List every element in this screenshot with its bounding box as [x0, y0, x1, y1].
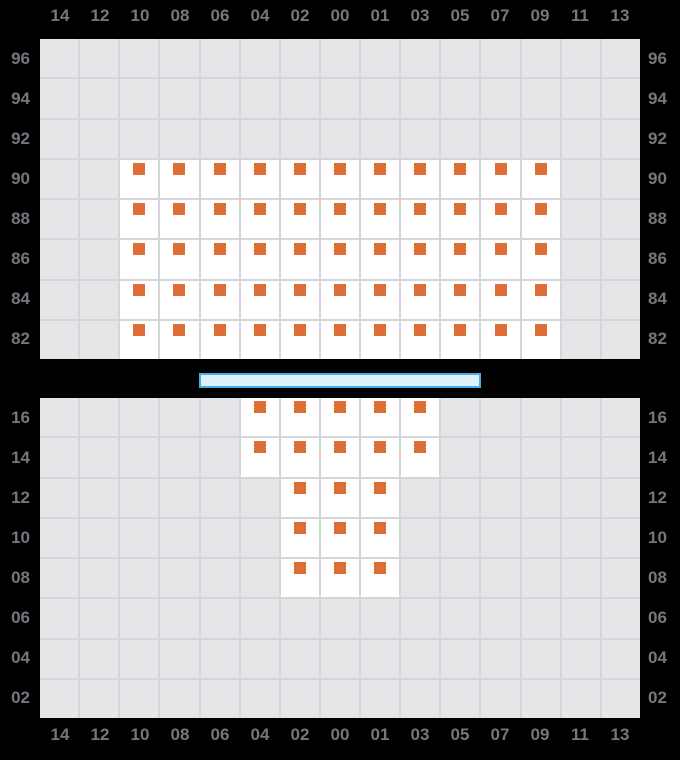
cell-88-06[interactable]: [201, 200, 239, 238]
cell-08-05: [441, 559, 479, 597]
cell-96-06: [201, 39, 239, 77]
cell-82-02[interactable]: [281, 321, 319, 359]
cell-12-01[interactable]: [361, 479, 399, 517]
occupied-marker-icon: [374, 203, 386, 215]
cell-86-05[interactable]: [441, 240, 479, 278]
cell-90-01[interactable]: [361, 160, 399, 198]
row-label-90: 90: [648, 159, 680, 199]
cell-92-05: [441, 120, 479, 158]
cell-82-09[interactable]: [522, 321, 560, 359]
row-label-06: 06: [0, 598, 30, 638]
cell-16-09: [522, 398, 560, 436]
occupied-marker-icon: [334, 284, 346, 296]
cell-96-10: [120, 39, 158, 77]
cell-90-03[interactable]: [401, 160, 439, 198]
cell-16-04[interactable]: [241, 398, 279, 436]
cell-04-07: [481, 640, 519, 678]
cell-02-02: [281, 680, 319, 718]
occupied-marker-icon: [495, 203, 507, 215]
cell-02-11: [562, 680, 600, 718]
cell-86-01[interactable]: [361, 240, 399, 278]
cell-12-09: [522, 479, 560, 517]
cell-04-03: [401, 640, 439, 678]
cell-96-12: [80, 39, 118, 77]
cell-94-14: [40, 79, 78, 117]
cell-84-11: [562, 281, 600, 319]
occupied-marker-icon: [214, 243, 226, 255]
cell-88-01[interactable]: [361, 200, 399, 238]
occupied-marker-icon: [374, 324, 386, 336]
occupied-marker-icon: [535, 284, 547, 296]
occupied-marker-icon: [414, 324, 426, 336]
cell-84-03[interactable]: [401, 281, 439, 319]
cell-84-06[interactable]: [201, 281, 239, 319]
cell-84-08[interactable]: [160, 281, 198, 319]
cell-02-12: [80, 680, 118, 718]
cell-08-11: [562, 559, 600, 597]
column-label-02: 02: [280, 0, 320, 32]
occupied-marker-icon: [334, 441, 346, 453]
cell-96-03: [401, 39, 439, 77]
row-label-10: 10: [648, 518, 680, 558]
cell-90-09[interactable]: [522, 160, 560, 198]
occupied-marker-icon: [334, 203, 346, 215]
cell-16-00[interactable]: [321, 398, 359, 436]
occupied-marker-icon: [374, 284, 386, 296]
cell-14-03[interactable]: [401, 438, 439, 476]
cell-12-13: [602, 479, 640, 517]
cell-84-02[interactable]: [281, 281, 319, 319]
cell-04-08: [160, 640, 198, 678]
row-labels-lower-left: 1614121008060402: [0, 398, 34, 718]
cell-86-09[interactable]: [522, 240, 560, 278]
cell-08-00[interactable]: [321, 559, 359, 597]
cell-84-07[interactable]: [481, 281, 519, 319]
row-label-04: 04: [0, 638, 30, 678]
cell-12-07: [481, 479, 519, 517]
cell-84-05[interactable]: [441, 281, 479, 319]
cell-08-10: [120, 559, 158, 597]
column-label-03: 03: [400, 0, 440, 32]
cell-12-12: [80, 479, 118, 517]
cell-88-08[interactable]: [160, 200, 198, 238]
divider-bar: [199, 373, 481, 388]
cell-12-04: [241, 479, 279, 517]
cell-16-03[interactable]: [401, 398, 439, 436]
cell-82-03[interactable]: [401, 321, 439, 359]
occupied-marker-icon: [173, 284, 185, 296]
cell-08-01[interactable]: [361, 559, 399, 597]
occupied-marker-icon: [214, 163, 226, 175]
cell-82-13: [602, 321, 640, 359]
row-label-14: 14: [648, 438, 680, 478]
row-label-14: 14: [0, 438, 30, 478]
row-label-12: 12: [648, 478, 680, 518]
cell-86-13: [602, 240, 640, 278]
row-label-04: 04: [648, 638, 680, 678]
occupied-marker-icon: [254, 401, 266, 413]
cell-08-09: [522, 559, 560, 597]
occupied-marker-icon: [374, 522, 386, 534]
cell-88-13: [602, 200, 640, 238]
cell-84-13: [602, 281, 640, 319]
cell-88-03[interactable]: [401, 200, 439, 238]
row-label-94: 94: [648, 79, 680, 119]
cell-90-06[interactable]: [201, 160, 239, 198]
cell-88-04[interactable]: [241, 200, 279, 238]
cell-92-10: [120, 120, 158, 158]
column-label-04: 04: [240, 719, 280, 751]
cell-02-00: [321, 680, 359, 718]
cell-04-13: [602, 640, 640, 678]
occupied-marker-icon: [495, 284, 507, 296]
column-label-02: 02: [280, 719, 320, 751]
cell-84-10[interactable]: [120, 281, 158, 319]
occupied-marker-icon: [294, 482, 306, 494]
cell-14-02[interactable]: [281, 438, 319, 476]
cell-82-07[interactable]: [481, 321, 519, 359]
cell-94-09: [522, 79, 560, 117]
cell-02-13: [602, 680, 640, 718]
cell-84-04[interactable]: [241, 281, 279, 319]
cell-04-04: [241, 640, 279, 678]
cell-14-04[interactable]: [241, 438, 279, 476]
cell-86-14: [40, 240, 78, 278]
cell-94-12: [80, 79, 118, 117]
occupied-marker-icon: [294, 163, 306, 175]
occupied-marker-icon: [294, 203, 306, 215]
cell-06-03: [401, 599, 439, 637]
occupied-marker-icon: [294, 522, 306, 534]
cell-12-02[interactable]: [281, 479, 319, 517]
row-label-90: 90: [0, 159, 30, 199]
grid-map-page: 141210080604020001030507091113 969492908…: [0, 0, 680, 760]
cell-82-12: [80, 321, 118, 359]
cell-10-00[interactable]: [321, 519, 359, 557]
cell-14-06: [201, 438, 239, 476]
row-label-84: 84: [0, 279, 30, 319]
cell-10-08: [160, 519, 198, 557]
cell-82-08[interactable]: [160, 321, 198, 359]
cell-06-02: [281, 599, 319, 637]
column-label-12: 12: [80, 719, 120, 751]
row-label-02: 02: [0, 678, 30, 718]
cell-04-11: [562, 640, 600, 678]
row-labels-upper-right: 9694929088868482: [646, 39, 680, 359]
cell-82-04[interactable]: [241, 321, 279, 359]
cell-82-14: [40, 321, 78, 359]
cell-92-06: [201, 120, 239, 158]
cell-10-09: [522, 519, 560, 557]
cell-86-08[interactable]: [160, 240, 198, 278]
column-label-09: 09: [520, 0, 560, 32]
cell-08-14: [40, 559, 78, 597]
cell-16-12: [80, 398, 118, 436]
cell-14-05: [441, 438, 479, 476]
cell-04-14: [40, 640, 78, 678]
cell-10-12: [80, 519, 118, 557]
cell-86-02[interactable]: [281, 240, 319, 278]
row-label-84: 84: [648, 279, 680, 319]
cell-10-14: [40, 519, 78, 557]
cell-08-02[interactable]: [281, 559, 319, 597]
cell-14-00[interactable]: [321, 438, 359, 476]
cell-82-11: [562, 321, 600, 359]
cell-96-08: [160, 39, 198, 77]
cell-88-05[interactable]: [441, 200, 479, 238]
column-label-07: 07: [480, 719, 520, 751]
row-label-86: 86: [648, 239, 680, 279]
cell-88-12: [80, 200, 118, 238]
cell-14-01[interactable]: [361, 438, 399, 476]
occupied-marker-icon: [254, 284, 266, 296]
cell-06-01: [361, 599, 399, 637]
occupied-marker-icon: [294, 243, 306, 255]
cell-12-00[interactable]: [321, 479, 359, 517]
cell-06-11: [562, 599, 600, 637]
column-label-06: 06: [200, 0, 240, 32]
column-label-00: 00: [320, 0, 360, 32]
row-label-02: 02: [648, 678, 680, 718]
occupied-marker-icon: [254, 243, 266, 255]
row-label-08: 08: [648, 558, 680, 598]
cell-92-14: [40, 120, 78, 158]
column-labels-top: 141210080604020001030507091113: [40, 0, 640, 32]
occupied-marker-icon: [374, 401, 386, 413]
column-label-11: 11: [560, 719, 600, 751]
cell-06-00: [321, 599, 359, 637]
cell-08-03: [401, 559, 439, 597]
cell-02-01: [361, 680, 399, 718]
cell-82-00[interactable]: [321, 321, 359, 359]
occupied-marker-icon: [454, 243, 466, 255]
occupied-marker-icon: [334, 562, 346, 574]
cell-92-11: [562, 120, 600, 158]
occupied-marker-icon: [334, 324, 346, 336]
cell-88-02[interactable]: [281, 200, 319, 238]
column-label-04: 04: [240, 0, 280, 32]
cell-94-10: [120, 79, 158, 117]
cell-16-07: [481, 398, 519, 436]
cell-04-05: [441, 640, 479, 678]
cell-94-04: [241, 79, 279, 117]
cell-92-02: [281, 120, 319, 158]
occupied-marker-icon: [334, 243, 346, 255]
cell-06-13: [602, 599, 640, 637]
cell-14-11: [562, 438, 600, 476]
row-label-16: 16: [0, 398, 30, 438]
cell-06-09: [522, 599, 560, 637]
cell-94-03: [401, 79, 439, 117]
cell-10-04: [241, 519, 279, 557]
column-label-01: 01: [360, 0, 400, 32]
cell-90-08[interactable]: [160, 160, 198, 198]
column-label-14: 14: [40, 0, 80, 32]
column-label-07: 07: [480, 0, 520, 32]
occupied-marker-icon: [254, 324, 266, 336]
occupied-marker-icon: [173, 243, 185, 255]
cell-90-12: [80, 160, 118, 198]
cell-92-00: [321, 120, 359, 158]
row-label-16: 16: [648, 398, 680, 438]
row-labels-upper-left: 9694929088868482: [0, 39, 34, 359]
cell-16-05: [441, 398, 479, 436]
cell-84-14: [40, 281, 78, 319]
cell-84-00[interactable]: [321, 281, 359, 319]
cell-86-00[interactable]: [321, 240, 359, 278]
column-labels-bottom: 141210080604020001030507091113: [40, 719, 640, 751]
cell-90-11: [562, 160, 600, 198]
cell-90-10[interactable]: [120, 160, 158, 198]
occupied-marker-icon: [334, 163, 346, 175]
cell-92-08: [160, 120, 198, 158]
cell-08-13: [602, 559, 640, 597]
cell-04-09: [522, 640, 560, 678]
row-label-82: 82: [0, 319, 30, 359]
column-label-08: 08: [160, 0, 200, 32]
cell-16-13: [602, 398, 640, 436]
occupied-marker-icon: [214, 284, 226, 296]
cell-90-04[interactable]: [241, 160, 279, 198]
cell-96-07: [481, 39, 519, 77]
row-label-92: 92: [0, 119, 30, 159]
cell-82-10[interactable]: [120, 321, 158, 359]
cell-10-02[interactable]: [281, 519, 319, 557]
cell-16-10: [120, 398, 158, 436]
cell-88-00[interactable]: [321, 200, 359, 238]
cell-10-01[interactable]: [361, 519, 399, 557]
cell-06-04: [241, 599, 279, 637]
cell-90-07[interactable]: [481, 160, 519, 198]
cell-86-04[interactable]: [241, 240, 279, 278]
cell-16-02[interactable]: [281, 398, 319, 436]
cell-82-05[interactable]: [441, 321, 479, 359]
cell-04-02: [281, 640, 319, 678]
cell-94-07: [481, 79, 519, 117]
cell-90-00[interactable]: [321, 160, 359, 198]
column-label-01: 01: [360, 719, 400, 751]
cell-88-11: [562, 200, 600, 238]
cell-92-12: [80, 120, 118, 158]
cell-94-05: [441, 79, 479, 117]
column-label-14: 14: [40, 719, 80, 751]
occupied-marker-icon: [254, 203, 266, 215]
row-label-88: 88: [0, 199, 30, 239]
cell-96-14: [40, 39, 78, 77]
cell-86-10[interactable]: [120, 240, 158, 278]
occupied-marker-icon: [334, 401, 346, 413]
occupied-marker-icon: [414, 163, 426, 175]
cell-90-05[interactable]: [441, 160, 479, 198]
cell-92-01: [361, 120, 399, 158]
cell-08-04: [241, 559, 279, 597]
row-label-82: 82: [648, 319, 680, 359]
cell-90-02[interactable]: [281, 160, 319, 198]
occupied-marker-icon: [214, 203, 226, 215]
row-labels-lower-right: 1614121008060402: [646, 398, 680, 718]
cell-86-07[interactable]: [481, 240, 519, 278]
column-label-03: 03: [400, 719, 440, 751]
occupied-marker-icon: [535, 243, 547, 255]
occupied-marker-icon: [254, 441, 266, 453]
column-label-05: 05: [440, 719, 480, 751]
cell-10-07: [481, 519, 519, 557]
cell-16-08: [160, 398, 198, 436]
cell-12-03: [401, 479, 439, 517]
row-label-96: 96: [648, 39, 680, 79]
occupied-marker-icon: [495, 243, 507, 255]
cell-84-01[interactable]: [361, 281, 399, 319]
cell-88-07[interactable]: [481, 200, 519, 238]
cell-12-14: [40, 479, 78, 517]
cell-90-14: [40, 160, 78, 198]
cell-16-01[interactable]: [361, 398, 399, 436]
occupied-marker-icon: [254, 163, 266, 175]
row-label-92: 92: [648, 119, 680, 159]
cell-06-05: [441, 599, 479, 637]
cell-86-06[interactable]: [201, 240, 239, 278]
occupied-marker-icon: [414, 284, 426, 296]
cell-02-10: [120, 680, 158, 718]
occupied-marker-icon: [535, 163, 547, 175]
cell-02-04: [241, 680, 279, 718]
occupied-marker-icon: [334, 482, 346, 494]
cell-06-06: [201, 599, 239, 637]
lower-grid: [40, 398, 640, 718]
cell-82-06[interactable]: [201, 321, 239, 359]
cell-94-02: [281, 79, 319, 117]
occupied-marker-icon: [414, 243, 426, 255]
cell-88-10[interactable]: [120, 200, 158, 238]
row-label-06: 06: [648, 598, 680, 638]
cell-04-06: [201, 640, 239, 678]
occupied-marker-icon: [374, 562, 386, 574]
cell-04-12: [80, 640, 118, 678]
cell-02-05: [441, 680, 479, 718]
cell-82-01[interactable]: [361, 321, 399, 359]
cell-10-10: [120, 519, 158, 557]
occupied-marker-icon: [334, 522, 346, 534]
cell-86-12: [80, 240, 118, 278]
cell-88-14: [40, 200, 78, 238]
cell-16-06: [201, 398, 239, 436]
occupied-marker-icon: [495, 163, 507, 175]
cell-10-06: [201, 519, 239, 557]
cell-88-09[interactable]: [522, 200, 560, 238]
cell-10-05: [441, 519, 479, 557]
cell-08-06: [201, 559, 239, 597]
row-label-08: 08: [0, 558, 30, 598]
occupied-marker-icon: [294, 401, 306, 413]
cell-02-14: [40, 680, 78, 718]
cell-14-13: [602, 438, 640, 476]
column-label-00: 00: [320, 719, 360, 751]
cell-02-06: [201, 680, 239, 718]
occupied-marker-icon: [414, 203, 426, 215]
occupied-marker-icon: [495, 324, 507, 336]
cell-84-09[interactable]: [522, 281, 560, 319]
cell-94-11: [562, 79, 600, 117]
cell-86-03[interactable]: [401, 240, 439, 278]
row-label-94: 94: [0, 79, 30, 119]
cell-14-09: [522, 438, 560, 476]
occupied-marker-icon: [294, 324, 306, 336]
column-label-09: 09: [520, 719, 560, 751]
occupied-marker-icon: [133, 324, 145, 336]
cell-12-11: [562, 479, 600, 517]
cell-02-08: [160, 680, 198, 718]
cell-10-03: [401, 519, 439, 557]
